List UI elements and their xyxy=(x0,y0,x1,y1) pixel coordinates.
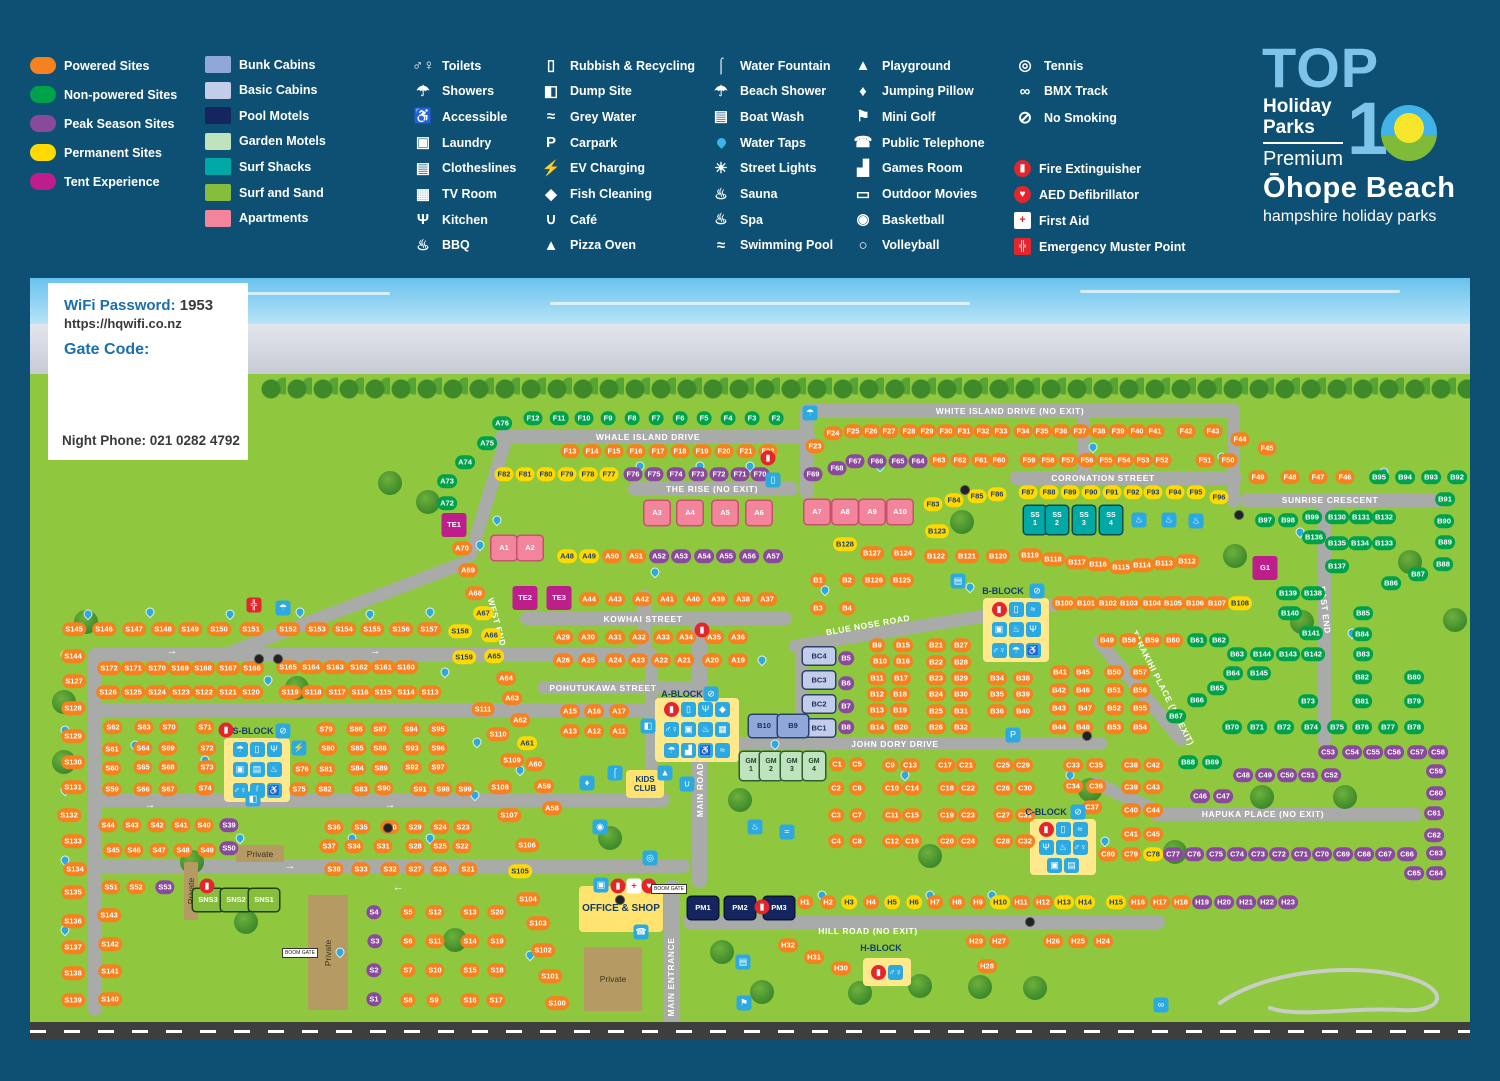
site-F86: F86 xyxy=(988,487,1007,501)
site-F18: F18 xyxy=(671,444,690,458)
site-C36: C36 xyxy=(1086,779,1106,793)
site-B26: B26 xyxy=(926,720,946,734)
site-F24: F24 xyxy=(824,426,843,440)
water-tap-icon xyxy=(472,737,482,747)
legend-facility: ☂Beach Shower xyxy=(710,84,826,99)
site-A37: A37 xyxy=(757,592,777,606)
site-F64: F64 xyxy=(909,454,928,468)
park-map: WHALE ISLAND DRIVEWHITE ISLAND DRIVE (NO… xyxy=(30,278,1470,1040)
site-B9: B9 xyxy=(778,715,808,737)
site-C11: C11 xyxy=(882,808,901,822)
site-C26: C26 xyxy=(993,781,1013,795)
site-B93: B93 xyxy=(1421,470,1441,484)
site-S95: S95 xyxy=(428,722,447,736)
road-label: HAPUKA PLACE (NO EXIT) xyxy=(1202,809,1324,819)
site-C71: C71 xyxy=(1291,847,1311,861)
site-S10: S10 xyxy=(425,963,444,977)
site-A42: A42 xyxy=(632,592,652,606)
site-S6: S6 xyxy=(400,934,415,948)
site-S45: S45 xyxy=(103,843,122,857)
site-B22: B22 xyxy=(926,655,946,669)
site-H8: H8 xyxy=(949,895,965,909)
site-C19: C19 xyxy=(937,808,957,822)
playground-icon: ▲ xyxy=(852,58,874,73)
site-A30: A30 xyxy=(578,630,598,644)
water-tap-icon xyxy=(225,609,235,619)
site-SS3: SS3 xyxy=(1073,506,1095,534)
site-A22: A22 xyxy=(651,653,671,667)
site-S65: S65 xyxy=(133,760,152,774)
site-F85: F85 xyxy=(968,489,987,503)
spa-icon: ♨ xyxy=(1162,513,1177,528)
nosmoke-icon: ⊘ xyxy=(704,687,719,702)
site-F47: F47 xyxy=(1309,470,1328,484)
tree xyxy=(1333,785,1357,809)
ev-icon: ⚡ xyxy=(292,741,307,756)
laundry-icon: ▣ xyxy=(412,135,434,150)
site-S168: S168 xyxy=(191,661,215,675)
wifi-password: WiFi Password: 1953 xyxy=(64,297,248,314)
water-tap-icon xyxy=(145,607,155,617)
site-S167: S167 xyxy=(216,661,240,675)
site-F29: F29 xyxy=(918,424,937,438)
site-F15: F15 xyxy=(605,444,624,458)
site-C51: C51 xyxy=(1298,768,1318,782)
tree xyxy=(950,510,974,534)
legend-label: AED Defibrillator xyxy=(1039,188,1139,202)
logo-premium: Premium xyxy=(1263,142,1343,171)
site-A48: A48 xyxy=(557,549,577,563)
site-H12: H12 xyxy=(1033,895,1053,909)
site-C32: C32 xyxy=(1015,834,1035,848)
site-S124: S124 xyxy=(145,685,169,699)
site-C50: C50 xyxy=(1277,768,1297,782)
site-H6: H6 xyxy=(906,895,922,909)
site-S91: S91 xyxy=(410,782,429,796)
park-map-poster: Powered SitesNon-powered SitesPeak Seaso… xyxy=(0,0,1500,1081)
site-S41: S41 xyxy=(171,818,190,832)
site-B133: B133 xyxy=(1372,536,1396,550)
site-B32: B32 xyxy=(951,720,971,734)
legend-accommodation: Garden Motels xyxy=(205,133,326,150)
site-B137: B137 xyxy=(1325,559,1349,573)
bbq-icon: ♨ xyxy=(1056,840,1071,855)
site-S94: S94 xyxy=(401,722,420,736)
block-label: C-BLOCK xyxy=(1025,807,1067,817)
site-S115: S115 xyxy=(371,685,394,699)
site-C29: C29 xyxy=(1013,758,1033,772)
site-S20: S20 xyxy=(487,905,506,919)
site-A43: A43 xyxy=(605,592,625,606)
legend-label: Pizza Oven xyxy=(570,238,636,252)
site-GM3: GM3 xyxy=(781,752,803,780)
site-S142: S142 xyxy=(98,937,122,951)
site-B5: B5 xyxy=(838,651,854,665)
site-C65: C65 xyxy=(1404,866,1424,880)
site-F62: F62 xyxy=(951,453,970,467)
site-C44: C44 xyxy=(1143,803,1163,817)
site-C39: C39 xyxy=(1121,780,1141,794)
site-F90: F90 xyxy=(1082,485,1101,499)
legend-label: Games Room xyxy=(882,161,963,175)
site-C57: C57 xyxy=(1407,745,1427,759)
bmx-icon: ∞ xyxy=(1014,84,1036,99)
legend-swatch xyxy=(30,144,56,161)
rubbish-icon: ▯ xyxy=(250,742,265,757)
cafe-icon: ∪ xyxy=(680,777,695,792)
site-F73: F73 xyxy=(689,467,708,481)
aed-icon: ♥ xyxy=(1014,186,1031,203)
site-B62: B62 xyxy=(1209,633,1229,647)
site-S154: S154 xyxy=(332,622,356,636)
site-A12: A12 xyxy=(584,724,604,738)
kitchen-icon: Ψ xyxy=(267,742,282,757)
toilets-icon: ♂♀ xyxy=(992,643,1007,658)
site-A60: A60 xyxy=(525,757,545,771)
site-S52: S52 xyxy=(126,880,145,894)
site-S171: S171 xyxy=(121,661,145,675)
site-A67: A67 xyxy=(473,606,493,620)
site-S122: S122 xyxy=(192,685,216,699)
site-S141: S141 xyxy=(98,964,122,978)
site-H13: H13 xyxy=(1054,895,1074,909)
site-A51: A51 xyxy=(626,549,646,563)
site-B43: B43 xyxy=(1049,701,1069,715)
legend-facility: ☎Public Telephone xyxy=(852,135,985,150)
tree xyxy=(378,471,402,495)
site-S34: S34 xyxy=(344,839,363,853)
site-A9: A9 xyxy=(860,500,885,524)
legend-facility: ▯Rubbish & Recycling xyxy=(540,58,695,73)
site-F65: F65 xyxy=(889,454,908,468)
site-S79: S79 xyxy=(316,722,335,736)
boatwash-icon: ▤ xyxy=(710,109,732,124)
fire-icon: ▮ xyxy=(664,702,679,717)
site-B143: B143 xyxy=(1276,647,1300,661)
site-S114: S114 xyxy=(394,685,417,699)
site-A72: A72 xyxy=(437,496,457,510)
legend-facility: ◆Fish Cleaning xyxy=(540,187,652,202)
site-C16: C16 xyxy=(902,834,922,848)
site-B10: B10 xyxy=(749,715,779,737)
site-C61: C61 xyxy=(1424,806,1444,820)
site-F78: F78 xyxy=(579,467,598,481)
site-B6: B6 xyxy=(838,676,854,690)
legend-facility: ♂♀Toilets xyxy=(412,58,481,73)
site-C40: C40 xyxy=(1121,803,1141,817)
legend-facility: ♨Sauna xyxy=(710,187,778,202)
shoreline-trees xyxy=(260,376,1470,400)
site-F20: F20 xyxy=(715,444,734,458)
site-S26: S26 xyxy=(430,862,449,876)
site-B49: B49 xyxy=(1097,633,1117,647)
site-B95: B95 xyxy=(1369,470,1389,484)
fire-icon: ▮ xyxy=(871,965,886,980)
site-C78: C78 xyxy=(1143,847,1163,861)
toilets-icon: ♂♀ xyxy=(1073,840,1088,855)
site-C28: C28 xyxy=(993,834,1013,848)
site-S135: S135 xyxy=(61,885,85,899)
site-F89: F89 xyxy=(1061,485,1080,499)
tennis-icon: ◎ xyxy=(643,851,658,866)
legend-label: Permanent Sites xyxy=(64,146,162,160)
site-A70: A70 xyxy=(452,541,472,555)
boom-gate-tag: BOOM GATE xyxy=(651,884,687,894)
site-A13: A13 xyxy=(560,724,580,738)
site-S42: S42 xyxy=(147,818,166,832)
site-F17: F17 xyxy=(649,444,668,458)
cafe-icon: ∪ xyxy=(540,212,562,227)
site-S152: S152 xyxy=(276,622,300,636)
site-F68: F68 xyxy=(828,461,847,475)
site-F34: F34 xyxy=(1014,424,1033,438)
site-B114: B114 xyxy=(1130,558,1154,572)
site-S80: S80 xyxy=(318,741,337,755)
road-label: MAIN ENTRANCE xyxy=(666,937,676,1016)
legend-label: Spa xyxy=(740,213,763,227)
site-F94: F94 xyxy=(1166,485,1185,499)
shower-icon: ☂ xyxy=(664,743,679,758)
site-B51: B51 xyxy=(1104,683,1124,697)
site-F49: F49 xyxy=(1249,470,1268,484)
fountain-icon: ⌠ xyxy=(608,766,623,781)
site-S29: S29 xyxy=(405,820,424,834)
site-B9: B9 xyxy=(869,638,885,652)
site-H19: H19 xyxy=(1192,895,1212,909)
site-S159: S159 xyxy=(452,650,476,664)
site-B46: B46 xyxy=(1073,683,1093,697)
site-C17: C17 xyxy=(935,758,955,772)
minigolf-icon: ⚑ xyxy=(852,109,874,124)
site-S111: S111 xyxy=(472,702,495,716)
site-SS4: SS4 xyxy=(1100,506,1122,534)
site-B91: B91 xyxy=(1435,492,1455,506)
site-S14: S14 xyxy=(460,934,479,948)
site-H16: H16 xyxy=(1128,895,1148,909)
site-B47: B47 xyxy=(1075,701,1095,715)
site-S105: S105 xyxy=(508,864,532,878)
site-H14: H14 xyxy=(1075,895,1095,909)
site-F79: F79 xyxy=(558,467,577,481)
park-name: Ōhope Beach xyxy=(1263,172,1455,205)
site-S48: S48 xyxy=(173,843,192,857)
road-label: CORONATION STREET xyxy=(1051,473,1155,483)
site-B3: B3 xyxy=(810,601,826,615)
site-B67: B67 xyxy=(1166,709,1186,723)
site-A50: A50 xyxy=(602,549,622,563)
site-S132: S132 xyxy=(57,808,81,822)
site-S18: S18 xyxy=(487,963,506,977)
site-B30: B30 xyxy=(951,687,971,701)
pizza-icon: ▲ xyxy=(658,766,673,781)
site-C10: C10 xyxy=(882,781,902,795)
site-H26: H26 xyxy=(1043,934,1063,948)
legend-label: Tennis xyxy=(1044,59,1083,73)
site-A32: A32 xyxy=(629,630,649,644)
fire-icon: ▮ xyxy=(219,723,234,738)
site-F5: F5 xyxy=(697,411,712,425)
site-C8: C8 xyxy=(849,834,865,848)
site-B145: B145 xyxy=(1247,666,1271,680)
legend-accommodation: Apartments xyxy=(205,210,308,227)
legend-facility: ⚑Mini Golf xyxy=(852,109,935,124)
legend-swatch xyxy=(30,86,56,103)
site-S172: S172 xyxy=(97,661,121,675)
site-TE2: TE2 xyxy=(513,586,538,610)
site-S72: S72 xyxy=(197,741,216,755)
site-S101: S101 xyxy=(538,969,562,983)
site-S32: S32 xyxy=(380,862,399,876)
site-SS1: SS1 xyxy=(1024,506,1046,534)
site-B144: B144 xyxy=(1250,647,1274,661)
legend-label: Playground xyxy=(882,59,951,73)
legend-facility: Water Taps xyxy=(710,135,806,150)
site-F55: F55 xyxy=(1097,453,1116,467)
site-S170: S170 xyxy=(145,661,169,675)
site-S23: S23 xyxy=(453,820,472,834)
legend-swatch xyxy=(205,107,231,124)
site-C21: C21 xyxy=(956,758,976,772)
site-B141: B141 xyxy=(1299,626,1323,640)
site-B74: B74 xyxy=(1301,720,1321,734)
site-A39: A39 xyxy=(708,592,728,606)
swim-icon: ≈ xyxy=(710,238,732,253)
site-B103: B103 xyxy=(1117,596,1141,610)
legend-facility: ⊘No Smoking xyxy=(1014,109,1117,126)
legend-facility: ▲Pizza Oven xyxy=(540,238,636,253)
site-B113: B113 xyxy=(1152,556,1176,570)
legend-label: Showers xyxy=(442,84,494,98)
site-S169: S169 xyxy=(168,661,192,675)
site-C58: C58 xyxy=(1428,745,1448,759)
site-B120: B120 xyxy=(986,549,1010,563)
site-B27: B27 xyxy=(951,638,971,652)
legend-label: Accessible xyxy=(442,110,507,124)
site-S117: S117 xyxy=(325,685,348,699)
block-label: H-BLOCK xyxy=(860,943,902,953)
site-C15: C15 xyxy=(902,808,922,822)
tree xyxy=(918,844,942,868)
site-B56: B56 xyxy=(1130,683,1150,697)
legend-label: BBQ xyxy=(442,238,470,252)
site-H30: H30 xyxy=(831,961,851,975)
site-H23: H23 xyxy=(1278,895,1298,909)
site-B54: B54 xyxy=(1130,720,1150,734)
site-B92: B92 xyxy=(1447,470,1467,484)
site-C35: C35 xyxy=(1086,758,1106,772)
site-F26: F26 xyxy=(862,424,881,438)
site-S109: S109 xyxy=(500,753,524,767)
site-SNS1: SNS1 xyxy=(249,889,279,911)
site-A63: A63 xyxy=(502,691,522,705)
site-S125: S125 xyxy=(121,685,145,699)
legend-facility: ∞BMX Track xyxy=(1014,84,1108,99)
streetlight-icon xyxy=(1025,917,1035,927)
site-S12: S12 xyxy=(425,905,444,919)
road-label: KOWHAI STREET xyxy=(603,614,682,624)
walking-trail xyxy=(1210,908,1460,1028)
site-B125: B125 xyxy=(890,573,914,587)
site-A62: A62 xyxy=(510,713,530,727)
site-C25: C25 xyxy=(993,758,1013,772)
site-B100: B100 xyxy=(1052,596,1076,610)
site-B73: B73 xyxy=(1298,694,1318,708)
site-B25: B25 xyxy=(926,704,946,718)
direction-arrow: → xyxy=(393,884,404,896)
site-S33: S33 xyxy=(351,862,370,876)
site-S123: S123 xyxy=(169,685,193,699)
site-S21: S21 xyxy=(458,862,477,876)
legend-swatch xyxy=(205,82,231,99)
firstaid-icon: + xyxy=(627,879,642,894)
site-B115: B115 xyxy=(1109,560,1133,574)
site-S129: S129 xyxy=(61,729,85,743)
minigolf-icon: ⚑ xyxy=(737,996,752,1011)
site-B59: B59 xyxy=(1142,633,1162,647)
streetlight-icon xyxy=(273,654,283,664)
site-F41: F41 xyxy=(1146,424,1165,438)
site-S121: S121 xyxy=(216,685,240,699)
site-F66: F66 xyxy=(868,454,887,468)
site-A56: A56 xyxy=(739,549,759,563)
spa-icon: ♨ xyxy=(710,212,732,227)
legend-facility: ⚡EV Charging xyxy=(540,161,645,176)
site-F81: F81 xyxy=(516,467,535,481)
fountain-icon: ⌠ xyxy=(710,58,732,73)
site-B34: B34 xyxy=(987,671,1007,685)
fire-icon: ▮ xyxy=(611,879,626,894)
tree xyxy=(728,788,752,812)
legend-label: Basketball xyxy=(882,213,945,227)
site-S71: S71 xyxy=(195,720,214,734)
site-F93: F93 xyxy=(1144,485,1163,499)
site-B50: B50 xyxy=(1104,665,1124,679)
water-tap-icon xyxy=(425,607,435,617)
site-F56: F56 xyxy=(1078,453,1097,467)
site-A31: A31 xyxy=(605,630,625,644)
operator-name: hampshire holiday parks xyxy=(1263,208,1436,226)
site-B128: B128 xyxy=(833,537,857,551)
laundry-icon: ▣ xyxy=(1047,858,1062,873)
legend-swatch xyxy=(205,56,231,73)
legend-site-type: Peak Season Sites xyxy=(30,115,174,132)
legend-facility: ∪Café xyxy=(540,212,597,227)
rubbish-icon: ▯ xyxy=(766,473,781,488)
site-S106: S106 xyxy=(515,838,539,852)
site-C1: C1 xyxy=(829,757,845,771)
water-tap-icon xyxy=(757,655,767,665)
site-H20: H20 xyxy=(1214,895,1234,909)
site-B53: B53 xyxy=(1104,720,1124,734)
carpark-icon: P xyxy=(540,135,562,150)
site-A17: A17 xyxy=(609,704,629,718)
site-C53: C53 xyxy=(1318,745,1338,759)
phone-icon: ☎ xyxy=(852,135,874,150)
bbq-icon: ♨ xyxy=(698,722,713,737)
volleyball-icon: ○ xyxy=(852,238,874,253)
rubbish-icon: ▯ xyxy=(1056,822,1071,837)
road-label: WHALE ISLAND DRIVE xyxy=(596,432,700,442)
site-S108: S108 xyxy=(488,780,512,794)
site-C80: C80 xyxy=(1098,847,1118,861)
site-A40: A40 xyxy=(683,592,703,606)
site-S136: S136 xyxy=(61,914,85,928)
site-F77: F77 xyxy=(600,467,619,481)
site-B121: B121 xyxy=(955,549,979,563)
site-A16: A16 xyxy=(584,704,604,718)
site-A57: A57 xyxy=(763,549,783,563)
site-A20: A20 xyxy=(702,653,722,667)
